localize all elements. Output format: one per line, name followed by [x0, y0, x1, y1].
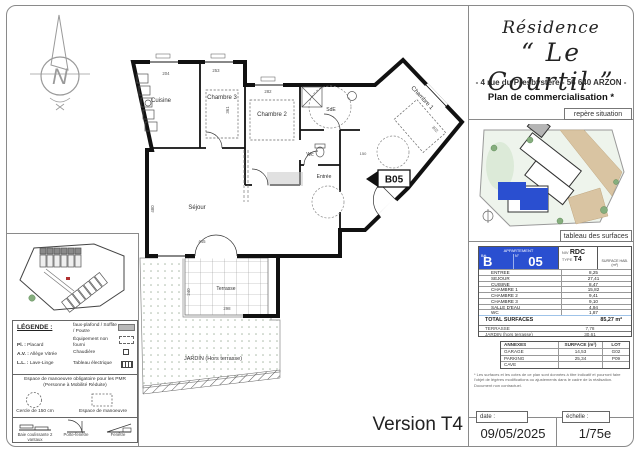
window-label: Fenêtre [103, 433, 133, 438]
room-label-wc: Wc [306, 152, 314, 158]
col-surface: SURFACE (m²) [559, 342, 603, 348]
room-label-entree: Entrée [317, 174, 332, 180]
row-label: TERRASSE [485, 326, 510, 331]
soffit-area [267, 172, 303, 186]
row-label: CHAMBRE 3 [491, 299, 518, 304]
row-label: CUISINE [491, 282, 510, 287]
legend-abbr-key: Pl. : [17, 343, 26, 348]
room-label-terrasse: Terrasse [216, 286, 235, 292]
site-plan [472, 124, 632, 232]
room-label-sde: SdE [326, 107, 336, 113]
appartement-label: APPARTEMENT [479, 248, 558, 253]
col-lot: LOT [603, 342, 629, 348]
annex-label: GARAGE [501, 349, 559, 354]
annexes-header: ANNEXES SURFACE (m²) LOT [501, 342, 629, 348]
bat-value: B [483, 254, 492, 269]
room-label-chambre2: Chambre 2 [257, 112, 287, 118]
legend-abbr-val: Placard [27, 343, 43, 348]
room-label-sejour: Séjour [188, 205, 205, 211]
residence-title: Résidence [472, 18, 630, 38]
niv-type-cell: NIV RDC TYPE T4 [558, 247, 598, 269]
annex-lot: G02 [603, 349, 629, 354]
disclaimer-note: * Les surfaces et les cotes de ce plan s… [474, 372, 631, 388]
legend-abbr-key: L.L. : [17, 361, 28, 366]
row-value: 1,87 [561, 310, 631, 315]
date-value: 09/05/2025 [470, 426, 556, 441]
legend-item-label: Chaudière [73, 350, 117, 356]
row-value: 9,10 [561, 299, 631, 304]
row-label: JARDIN (hors terrasse) [485, 332, 533, 337]
legend-title: LÉGENDE : [17, 324, 52, 331]
type-label: TYPE [562, 257, 572, 262]
sliding-bay-label: Baie coulissante 2 vantaux [13, 433, 57, 443]
legend-item-label: faux-plafond / Soffite / Poutre [73, 323, 117, 334]
total-label: TOTAL SURFACES [485, 316, 533, 325]
niv-label: NIV [562, 250, 569, 255]
dim-282: 282 [264, 89, 272, 94]
dim-204: 204 [162, 71, 170, 76]
surface-total-row: TOTAL SURFACES85,27 m² [479, 315, 631, 325]
dim-298: 298 [223, 306, 231, 311]
pmr-space-icon [91, 393, 113, 407]
legend-item-label: Tableau électrique [73, 361, 117, 367]
room-label-cuisine: Cuisine [151, 98, 172, 104]
row-label: ENTREE [491, 270, 510, 275]
row-value: 7,78 [558, 326, 628, 331]
dim-480: 480 [150, 205, 155, 213]
legend-item-label: Équipement non fourni [73, 337, 117, 348]
residence-name: “ Le Courtil ” [472, 38, 630, 96]
legend-abbr-key: A.V. : [17, 352, 29, 357]
col-annexes: ANNEXES [501, 342, 559, 348]
pmr-note: Espace de manoeuvre obligatoire pour les… [17, 377, 133, 389]
date-label: date : [476, 411, 528, 423]
row-value: 15,82 [561, 287, 631, 292]
floor-plan: Cuisine Chambre 3 Chambre 2 Chambre 1 Sd… [128, 52, 473, 432]
row-label: CHAMBRE 2 [491, 293, 518, 298]
door-window-label: Porte-fenêtre [57, 433, 95, 438]
legend-abbr-val: Allège Vitrée [30, 352, 57, 357]
row-label: CHAMBRE 1 [491, 287, 518, 292]
room-label-chambre3: Chambre 3 [207, 95, 237, 101]
tab-tableau-surfaces: tableau des surfaces [560, 230, 632, 242]
annexes-row: GARAGE 14,53 G02 [501, 348, 629, 354]
apartment-header: APPARTEMENT Bât. N° B 05 [479, 247, 558, 269]
niv-value: RDC [570, 249, 585, 256]
row-value: 8,47 [561, 282, 631, 287]
residence-address: - 4 rue du Presbystère - 56 640 ARZON - [470, 78, 632, 87]
annexes-row: PARKING 25,34 P09 [501, 355, 629, 361]
row-value: 8,25 [561, 270, 631, 275]
plan-subtitle: Plan de commercialisation * [470, 92, 632, 103]
scale-value: 1/75e [558, 426, 632, 441]
pmr-circle-icon [25, 391, 43, 409]
row-value: 9,41 [561, 293, 631, 298]
version-label: Version T4 [330, 414, 463, 436]
annex-label: PARKING [501, 356, 559, 361]
compass-letter: N [52, 64, 68, 89]
row-label: WC [491, 310, 499, 315]
legend-abbr-val: Lave-Linge [30, 361, 54, 366]
dim-150: 150 [360, 151, 367, 156]
legend-panel: LÉGENDE : Pl. : Placard A.V. : Allège Vi… [12, 320, 138, 443]
surface-table: APPARTEMENT Bât. N° B 05 NIV RDC TYPE T4… [478, 246, 632, 337]
row-value: 27,41 [561, 276, 631, 281]
tab-repere-situation: repère situation [564, 108, 632, 120]
scale-label: échelle : [562, 411, 610, 423]
annexes-row: CAVE [501, 361, 629, 367]
plan-sheet: N LÉGENDE : Pl. : Placard A.V. : Allège … [0, 0, 640, 453]
row-label: SALLE D'EAU [491, 305, 520, 310]
dim-240: 240 [186, 288, 191, 296]
type-value: T4 [574, 256, 582, 263]
row-value: 30,61 [558, 332, 628, 337]
row-label: SEJOUR [491, 276, 510, 281]
annex-surface [559, 362, 603, 367]
north-compass-icon: N [22, 10, 98, 120]
annex-surface: 14,53 [559, 349, 603, 354]
room-label-jardin: JARDIN (Hors terrasse) [184, 356, 242, 362]
annex-surface: 25,34 [559, 356, 603, 361]
dim-361: 361 [225, 106, 230, 114]
dim-253: 253 [212, 68, 220, 73]
row-value: 4,94 [561, 305, 631, 310]
surface-extra-row: JARDIN (hors terrasse)30,61 [479, 331, 631, 337]
tree-icon [29, 295, 35, 301]
dim-445: 445 [198, 239, 206, 244]
surface-col-header: SURFACE HAB. (m²) [597, 247, 631, 269]
annex-lot [603, 362, 629, 367]
left-panel-topline [7, 233, 138, 234]
parking-inset-plan [14, 240, 132, 316]
annex-label: CAVE [501, 362, 559, 367]
unit-number: B05 [385, 175, 404, 186]
pmr-space-label: Espace de manoeuvre [77, 409, 129, 415]
annexes-table: ANNEXES SURFACE (m²) LOT GARAGE 14,53 G0… [500, 341, 630, 369]
annex-lot: P09 [603, 356, 629, 361]
total-value: 85,27 m² [600, 316, 622, 325]
pmr-circle-label: Cercle de 150 cm [15, 409, 55, 415]
num-value: 05 [513, 254, 557, 269]
